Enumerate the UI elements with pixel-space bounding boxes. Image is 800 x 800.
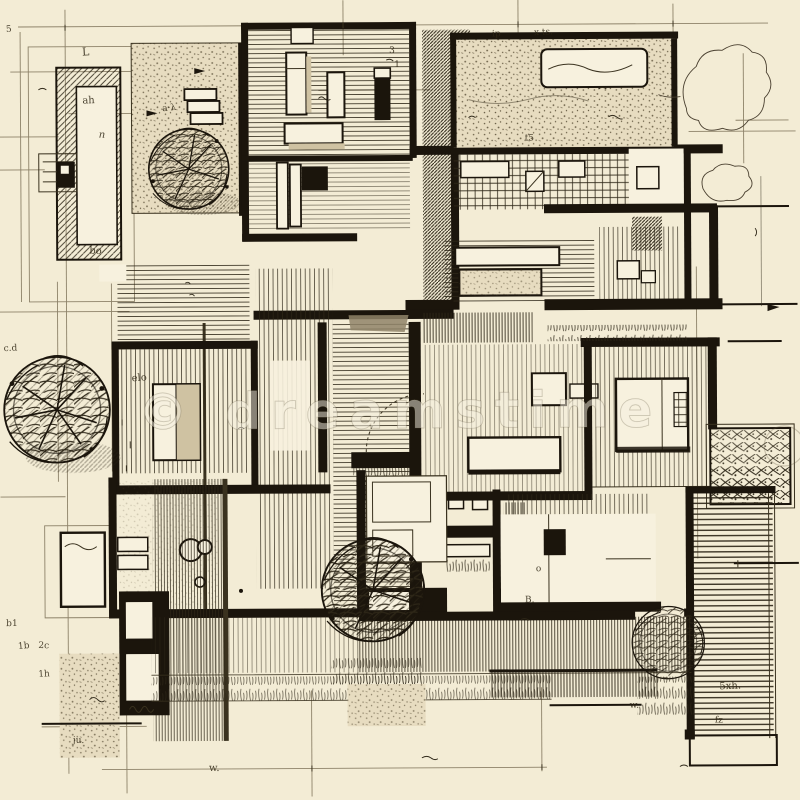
bed-west bbox=[468, 437, 560, 471]
pool-water bbox=[76, 86, 117, 244]
lounge-chair bbox=[541, 49, 647, 88]
appliance bbox=[118, 537, 148, 551]
annotation-3: 3 bbox=[389, 46, 395, 56]
annotation-b: B. bbox=[525, 595, 535, 605]
mid-spine-wall-east bbox=[544, 298, 722, 310]
lower-deck-band bbox=[489, 672, 657, 698]
annotation-5: 5 bbox=[6, 25, 13, 35]
annotation-ah: ah bbox=[82, 95, 95, 107]
plan-canvas: © dreamstime 5Lahnboa·λipx ts.t531eloc.d… bbox=[0, 0, 800, 800]
annotation-fz: fz bbox=[714, 715, 723, 726]
pool bbox=[38, 67, 121, 259]
annotation-l: L bbox=[82, 45, 91, 58]
sandy-patch bbox=[59, 653, 120, 757]
annotation-w: w. bbox=[630, 701, 640, 711]
annotation-ip: ip bbox=[492, 29, 501, 39]
tree-west bbox=[4, 355, 121, 473]
appliance bbox=[118, 555, 148, 569]
boardwalk-slats bbox=[690, 488, 773, 736]
tree-south bbox=[322, 537, 425, 641]
bush-southeast bbox=[632, 606, 705, 679]
annotation-bo: bo bbox=[89, 246, 102, 257]
annotation-b1: b1 bbox=[6, 619, 18, 629]
grass-fringe bbox=[548, 324, 688, 341]
annotation-cd: c.d bbox=[3, 344, 17, 355]
annotation-5xh: 5xh. bbox=[719, 680, 741, 692]
studio-room bbox=[501, 514, 656, 607]
tree-south-drips bbox=[331, 658, 421, 686]
courtyard-steps bbox=[184, 89, 222, 124]
courtyard bbox=[131, 43, 246, 217]
floor-plan-sketch: © dreamstime 5Lahnboa·λipx ts.t531eloc.d… bbox=[0, 0, 800, 800]
annotation-w: w. bbox=[209, 763, 220, 774]
annotation-n: n bbox=[98, 130, 105, 141]
bush-drips bbox=[637, 676, 695, 716]
annotation-2c: 2c bbox=[38, 641, 49, 651]
bench bbox=[351, 452, 417, 468]
annotation-a: a·λ bbox=[162, 103, 177, 115]
kitchen-island bbox=[61, 533, 105, 607]
annotation-ju: ju. bbox=[72, 736, 85, 746]
annotation-elo: elo bbox=[131, 372, 147, 384]
terrace-north bbox=[450, 32, 679, 148]
annotation-xts: x ts. bbox=[534, 27, 554, 38]
annotation-1: 1 bbox=[394, 60, 400, 70]
boardwalk-landing bbox=[690, 735, 777, 765]
corridor-mat bbox=[349, 315, 409, 332]
watermark-text: © dreamstime bbox=[138, 381, 663, 442]
annotation-1h: 1h bbox=[38, 669, 50, 680]
annotation-o: o bbox=[536, 564, 541, 574]
annotation-1b: 1b bbox=[18, 641, 31, 652]
upper-hatch-band bbox=[117, 263, 249, 342]
annotation-t5: t5 bbox=[525, 133, 535, 143]
